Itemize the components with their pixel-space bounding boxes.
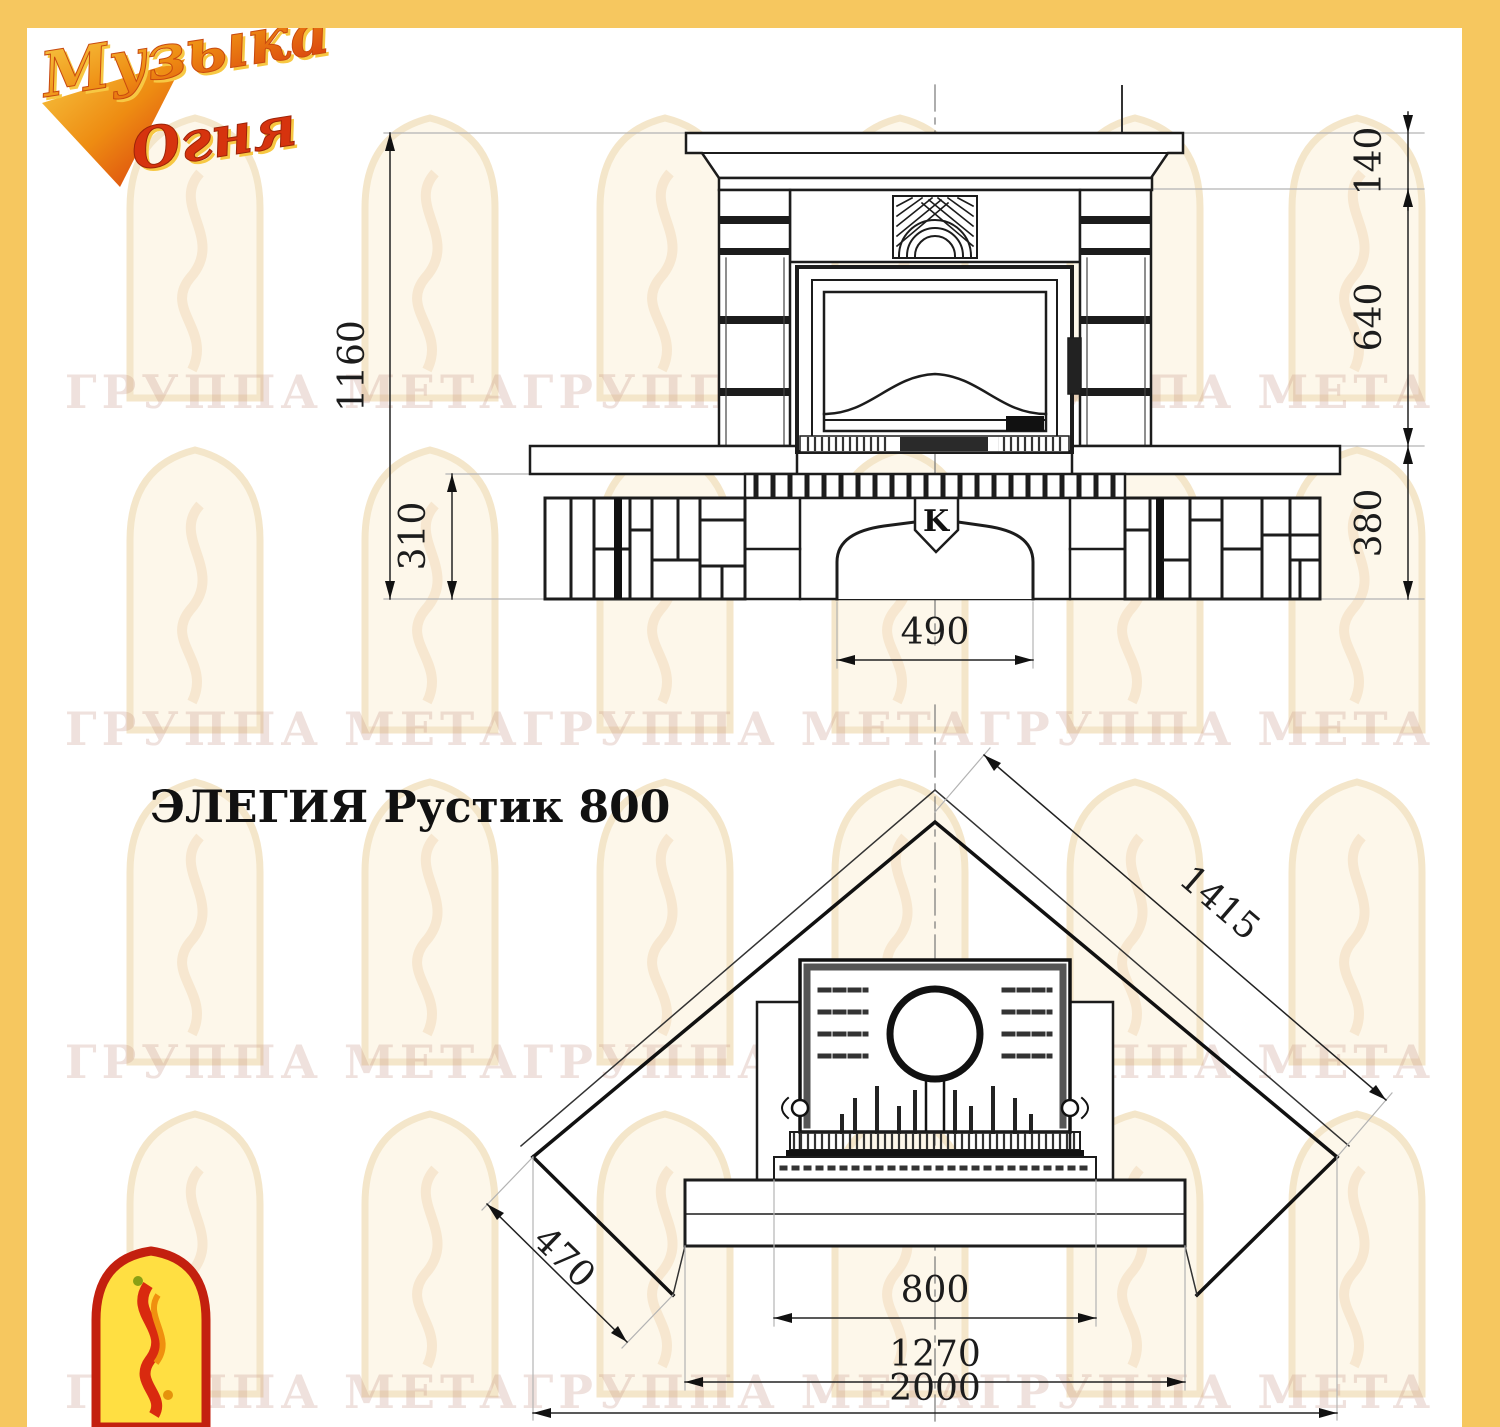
- dim-overall-width: 2000: [889, 1368, 981, 1409]
- door-latch-plate: [1006, 416, 1044, 431]
- dim-total-height: 1160: [332, 320, 373, 412]
- dim-side-depth: 470: [525, 1219, 603, 1296]
- dim-firebox-width: 800: [901, 1270, 970, 1311]
- hinge-left: [792, 1100, 808, 1116]
- brand-logo-top: Музыка Музыка Огня Огня: [34, 0, 337, 187]
- dim-niche-width: 490: [901, 612, 970, 653]
- cornice: [686, 133, 1183, 190]
- page-title: ЭЛЕГИЯ Рустик 800: [150, 782, 670, 833]
- dentil-band: [745, 474, 1125, 498]
- vent-grille-left: [806, 437, 890, 451]
- watermark-text: ГРУППА МЕТАГРУППА МЕТАГРУППА МЕТА: [65, 1365, 1435, 1419]
- stone-wing-right: [1125, 498, 1320, 599]
- page-border-left: [0, 0, 27, 1427]
- flue-circle: [890, 989, 980, 1079]
- fan-ornament: [893, 196, 977, 258]
- central-base: K: [745, 498, 1125, 599]
- dim-middle-height: 640: [1349, 283, 1390, 352]
- drawing-sheet: ГРУППА МЕТАГРУППА МЕТАГРУППА МЕТА ГРУППА…: [0, 0, 1500, 1427]
- firebox-door: [797, 267, 1081, 452]
- watermark-text: ГРУППА МЕТАГРУППА МЕТАГРУППА МЕТА: [65, 702, 1435, 756]
- page-border-top: [0, 0, 1500, 28]
- page-border-right: [1462, 0, 1500, 1427]
- brand-logo-bottom: [96, 1251, 206, 1427]
- vent-grille-right: [998, 437, 1064, 451]
- emblem-letter: K: [923, 504, 950, 539]
- door-sill-edge: [786, 1150, 1084, 1157]
- dim-plinth-height: 310: [393, 502, 434, 571]
- stone-wing-left: [545, 498, 745, 599]
- door-handle: [1068, 338, 1081, 394]
- dim-base-height: 380: [1349, 489, 1390, 558]
- front-bench-band: [685, 1180, 1185, 1246]
- door-glass: [824, 292, 1046, 431]
- hinge-right: [1062, 1100, 1078, 1116]
- firebox-plan: [782, 960, 1088, 1157]
- dim-cornice-height: 140: [1349, 127, 1390, 196]
- technical-drawing: ГРУППА МЕТАГРУППА МЕТАГРУППА МЕТА ГРУППА…: [0, 0, 1500, 1427]
- door-sill-hatch: [790, 1132, 1080, 1150]
- vent-grille-center: [900, 437, 988, 451]
